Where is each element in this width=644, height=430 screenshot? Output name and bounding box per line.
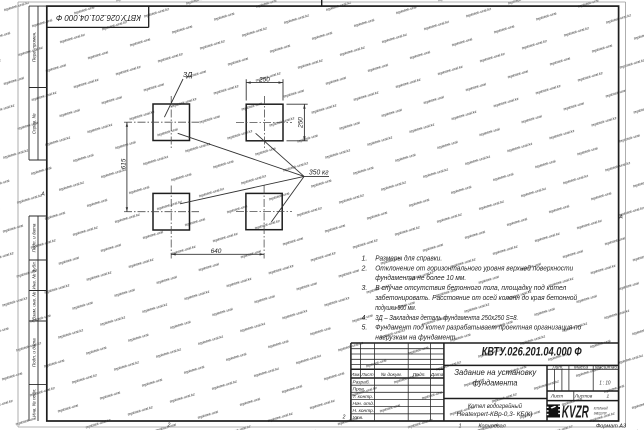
svg-text:2: 2 <box>342 415 346 421</box>
svg-text:Лист: Лист <box>550 394 563 400</box>
svg-text:фундамента: фундамента <box>473 378 518 388</box>
svg-text:КВТУ.026.201.04.000 Ф: КВТУ.026.201.04.000 Ф <box>482 345 582 359</box>
svg-text:Масса: Масса <box>574 364 589 370</box>
svg-text:1: 1 <box>606 394 609 400</box>
svg-text:Лист: Лист <box>360 372 373 378</box>
svg-text:Отклонение от горизонтального: Отклонение от горизонтального уровня вер… <box>375 264 573 272</box>
svg-text:Фундамент под котел разрабатыв: Фундамент под котел разрабатывает проект… <box>375 324 581 332</box>
svg-text:Н. контр.: Н. контр. <box>353 408 375 414</box>
svg-text:нагрузкам на фундамент.: нагрузкам на фундамент. <box>375 334 457 342</box>
svg-text:Лит.: Лит. <box>551 364 563 370</box>
svg-text:3Д: 3Д <box>183 70 192 79</box>
svg-text:Формат А3: Формат А3 <box>596 424 627 430</box>
svg-text:Подп. и дата: Подп. и дата <box>32 338 37 367</box>
svg-text:Дата: Дата <box>430 372 444 378</box>
svg-text:Справ. №: Справ. № <box>32 113 37 134</box>
svg-text:Инв. № подл.: Инв. № подл. <box>32 388 37 417</box>
svg-text:Копировал: Копировал <box>478 424 505 430</box>
svg-text:5.: 5. <box>362 325 368 332</box>
svg-text:Размеры для справки.: Размеры для справки. <box>375 254 442 262</box>
svg-text:250: 250 <box>258 76 270 83</box>
svg-text:В случае отсутствия бетонного: В случае отсутствия бетонного пола, площ… <box>375 284 566 292</box>
svg-text:Heatexpert-КВр-0,3- КБ(К): Heatexpert-КВр-0,3- КБ(К) <box>457 411 533 418</box>
svg-text:№ докум.: № докум. <box>381 372 402 378</box>
svg-text:КВТУ.026.201.04.000 Ф: КВТУ.026.201.04.000 Ф <box>55 13 141 22</box>
svg-text:1: 1 <box>458 424 461 430</box>
svg-text:1 : 10: 1 : 10 <box>599 381 611 387</box>
svg-text:1.: 1. <box>362 255 368 262</box>
svg-text:Инв. № дубл.: Инв. № дубл. <box>32 261 37 289</box>
svg-text:3.: 3. <box>362 285 368 292</box>
svg-text:640: 640 <box>211 248 222 255</box>
svg-text:2.: 2. <box>361 265 368 272</box>
svg-text:Разраб.: Разраб. <box>353 380 370 386</box>
svg-text:Нач. отд.: Нач. отд. <box>353 401 375 407</box>
svg-text:615: 615 <box>120 158 127 169</box>
svg-text:Утв.: Утв. <box>353 415 364 421</box>
svg-text:250: 250 <box>298 117 305 129</box>
svg-text:Перв. примен.: Перв. примен. <box>32 32 37 63</box>
svg-text:Листов: Листов <box>574 394 593 400</box>
svg-text:подушки 500 мм.: подушки 500 мм. <box>375 304 416 312</box>
svg-text:Подп. и дата: Подп. и дата <box>32 223 37 252</box>
svg-text:А: А <box>40 192 45 198</box>
svg-text:А: А <box>618 215 623 221</box>
svg-text:Т. контр.: Т. контр. <box>353 394 374 400</box>
svg-text:Задание на установку: Задание на установку <box>454 367 537 377</box>
svg-text:фундамента не более 10 мм.: фундамента не более 10 мм. <box>375 274 466 282</box>
svg-text:Изм.: Изм. <box>350 372 360 378</box>
svg-text:Подп.: Подп. <box>413 372 426 378</box>
svg-text:4.: 4. <box>362 315 368 322</box>
svg-text:KVZR: KVZR <box>562 401 589 421</box>
svg-text:2: 2 <box>167 423 171 429</box>
svg-text:3Д – Закладная деталь фундамен: 3Д – Закладная деталь фундамента 250х250… <box>375 314 518 322</box>
svg-text:350 кг: 350 кг <box>309 169 329 176</box>
svg-text:Взам. инв. №: Взам. инв. № <box>32 292 37 320</box>
svg-text:Котел водогрейный: Котел водогрейный <box>468 403 523 410</box>
svg-text:забетонировать. Расстояние от: забетонировать. Расстояние от осей колон… <box>374 294 577 302</box>
svg-text:Масштаб: Масштаб <box>595 364 618 370</box>
svg-text:ЗАВОД РЗР: ЗАВОД РЗР <box>594 411 607 416</box>
svg-text:Пров.: Пров. <box>353 387 366 393</box>
